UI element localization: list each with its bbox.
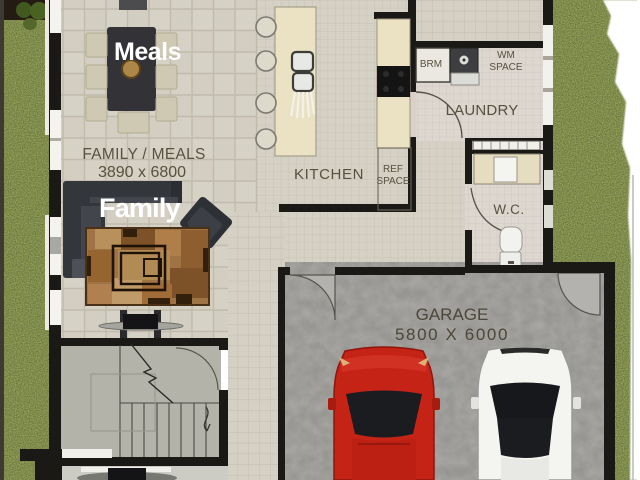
svg-text:REF: REF (383, 164, 403, 175)
svg-text:KITCHEN: KITCHEN (294, 166, 364, 183)
svg-text:BRM: BRM (420, 59, 442, 70)
svg-text:LAUNDRY: LAUNDRY (446, 102, 519, 119)
svg-text:5800 X 6000: 5800 X 6000 (395, 325, 509, 344)
svg-text:Family: Family (99, 193, 181, 223)
svg-text:WM: WM (497, 50, 515, 61)
svg-text:W.C.: W.C. (493, 202, 524, 217)
svg-text:Meals: Meals (114, 38, 181, 66)
svg-text:SPACE: SPACE (376, 176, 409, 187)
svg-text:GARAGE: GARAGE (416, 305, 489, 324)
svg-text:FAMILY / MEALS: FAMILY / MEALS (82, 146, 205, 163)
svg-text:SPACE: SPACE (489, 62, 522, 73)
svg-text:3890 x 6800: 3890 x 6800 (98, 164, 186, 181)
